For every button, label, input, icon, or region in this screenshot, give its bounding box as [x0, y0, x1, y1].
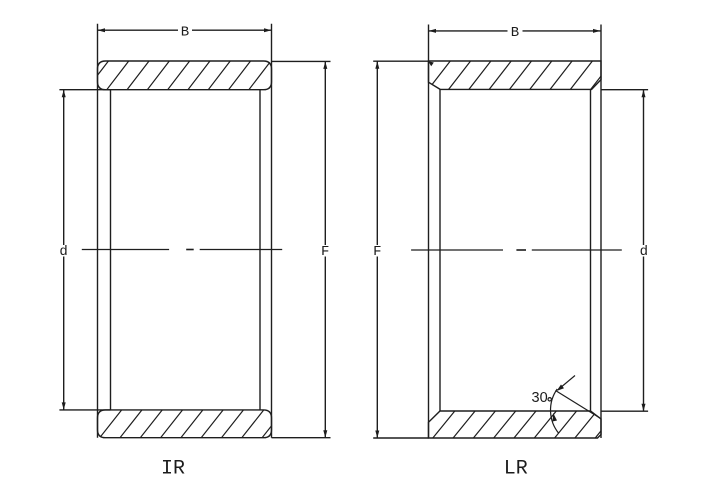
svg-text:30: 30 [532, 390, 548, 406]
svg-text:LR: LR [504, 458, 528, 481]
svg-text:B: B [511, 25, 519, 41]
svg-text:F: F [373, 244, 381, 260]
svg-text:B: B [181, 24, 189, 40]
svg-text:d: d [640, 244, 648, 260]
svg-text:d: d [59, 244, 67, 260]
svg-text:F: F [321, 244, 329, 260]
svg-text:IR: IR [161, 458, 185, 481]
